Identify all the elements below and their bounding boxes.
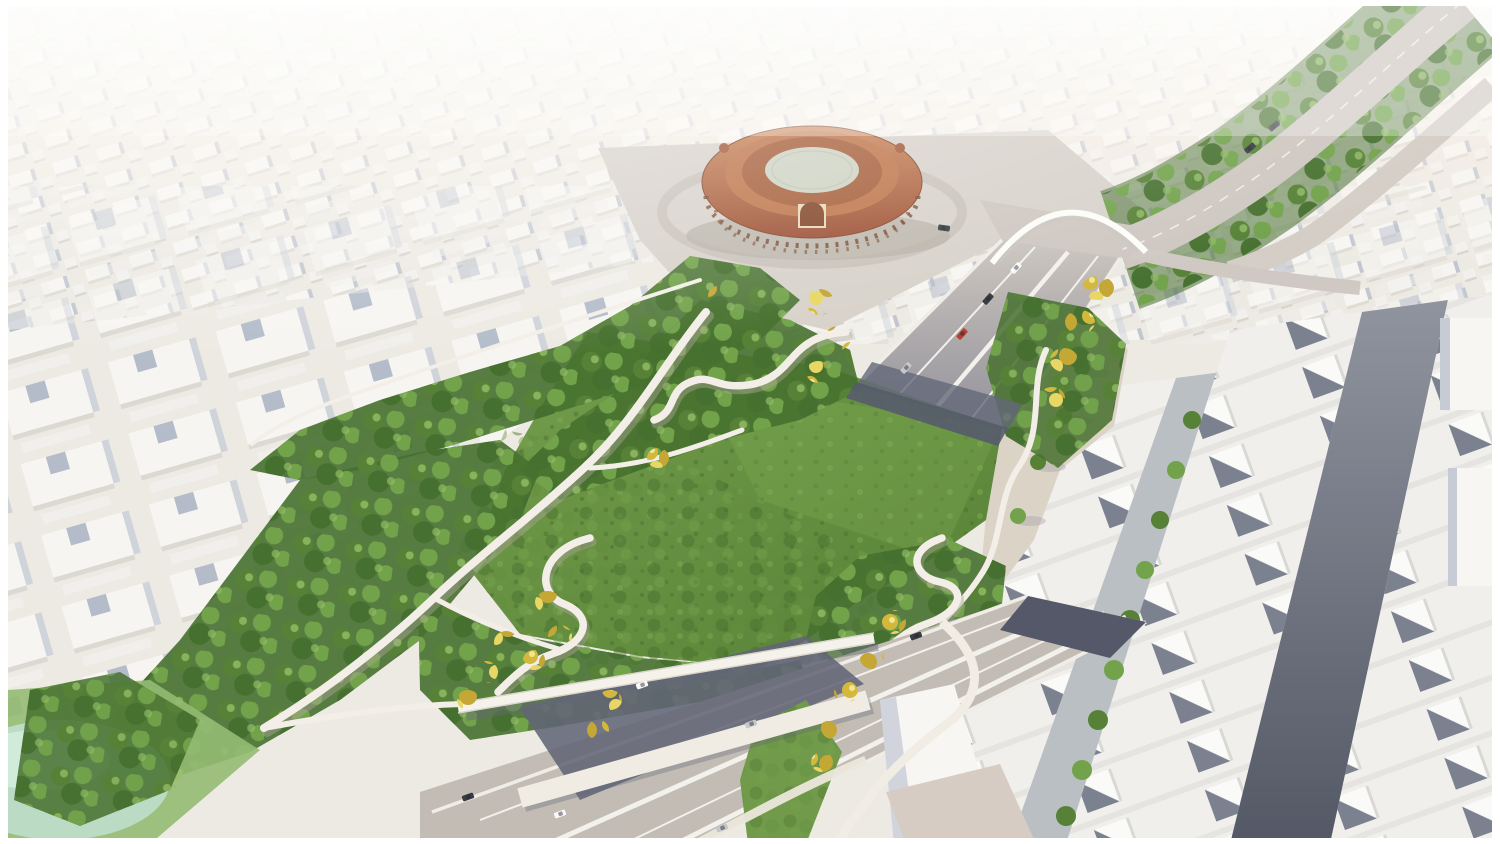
rendering-frame: Aerial 3D architectural rendering of a p… (0, 0, 1500, 844)
light-overlays (8, 6, 1492, 838)
aerial-rendering: Aerial 3D architectural rendering of a p… (0, 0, 1500, 844)
